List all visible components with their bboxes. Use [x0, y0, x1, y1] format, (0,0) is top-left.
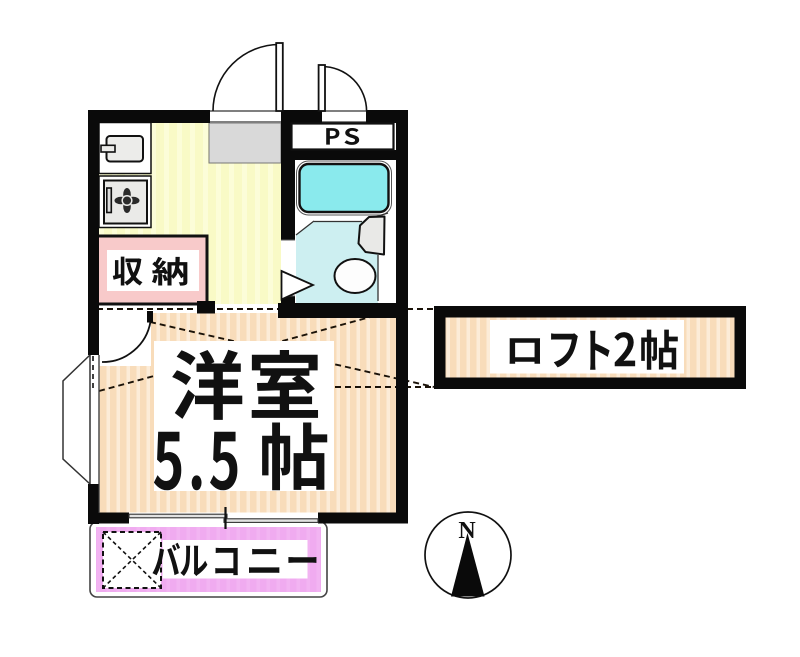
svg-text:N: N [458, 518, 476, 544]
